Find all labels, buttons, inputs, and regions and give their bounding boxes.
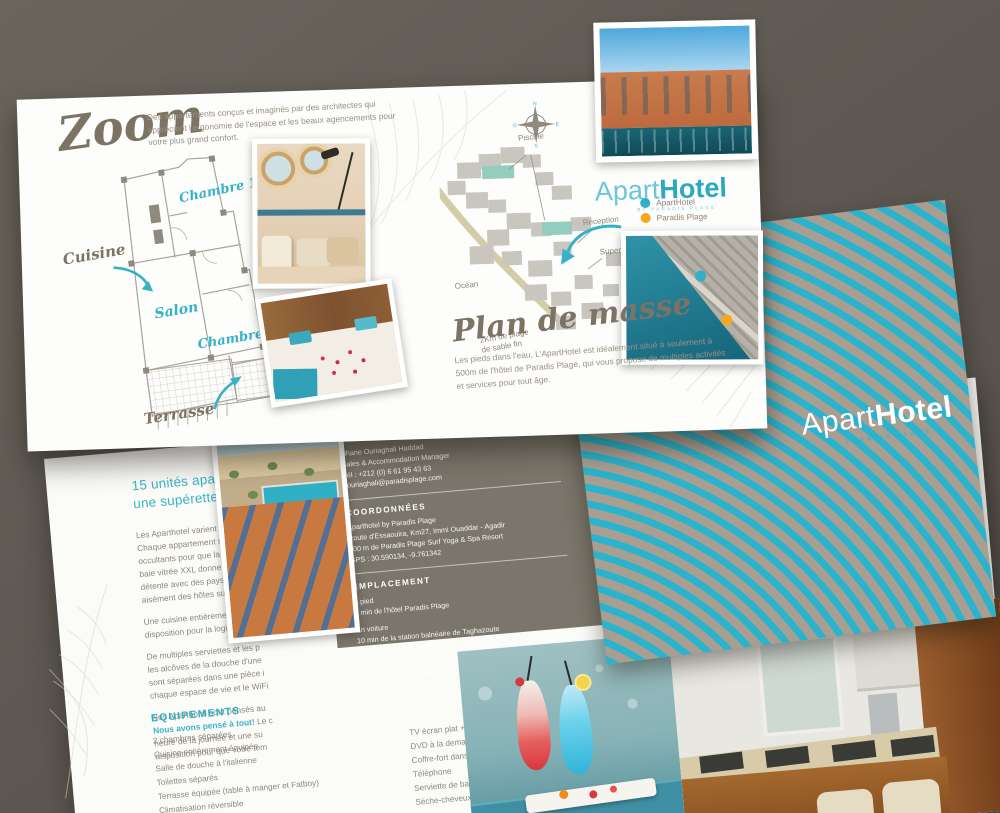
bedroom-photo [255,278,408,408]
svg-text:E: E [556,122,560,128]
arrow-icon [111,259,157,300]
resort-pool-photo [593,19,758,162]
arrow-icon [205,375,249,412]
cocktails-photo [457,633,686,813]
blue-cocktail [556,684,596,777]
cover-logo: ApartHotel BY PARADIS PLAGE [770,387,986,455]
legend-item-paradis: Paradis Plage [641,211,708,223]
legend-item-aparthotel: ApartHotel [640,196,707,208]
logo-hotel: Hotel [873,390,954,432]
brochure-zoom-spread: Zoom Des appartements conçus et imaginés… [17,76,768,451]
lemon-slice [574,673,592,691]
svg-text:N: N [533,101,537,107]
pool-terrace-photo [211,427,360,644]
curved-arrow-icon [556,221,630,275]
mockup-background: 15 unités aparthotel s une supérette, su… [0,0,1000,813]
living-room-photo [252,138,371,289]
red-cocktail [513,679,553,772]
map-legend: ApartHotel Paradis Plage [640,196,708,228]
teal-dot-icon [640,198,650,208]
orange-dot-icon [641,213,651,223]
svg-text:O: O [513,123,517,129]
aparthotel-pin-icon [695,270,706,281]
logo-apart: Apart [800,400,878,442]
